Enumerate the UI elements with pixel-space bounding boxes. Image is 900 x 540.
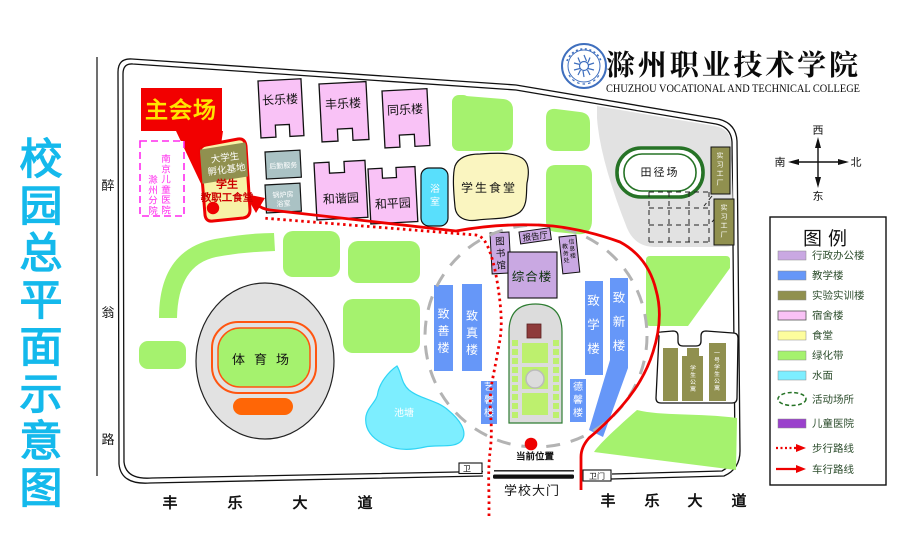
svg-text:和谐园: 和谐园 xyxy=(322,189,359,208)
svg-text:南: 南 xyxy=(775,154,786,170)
svg-text:楼: 楼 xyxy=(437,339,449,356)
svg-text:水面: 水面 xyxy=(812,368,833,383)
svg-text:同乐楼: 同乐楼 xyxy=(387,100,424,119)
svg-text:西: 西 xyxy=(813,122,824,138)
svg-text:院: 院 xyxy=(161,203,171,217)
svg-text:田径场: 田径场 xyxy=(641,164,680,180)
svg-text:当前位置: 当前位置 xyxy=(516,449,555,463)
svg-text:绿化带: 绿化带 xyxy=(812,348,844,363)
svg-text:学: 学 xyxy=(587,314,600,333)
svg-text:楼: 楼 xyxy=(466,341,478,358)
svg-text:学生食堂: 学生食堂 xyxy=(461,179,517,196)
svg-text:CHUZHOU VOCATIONAL AND TECHNIC: CHUZHOU VOCATIONAL AND TECHNICAL COLLEGE xyxy=(606,82,860,95)
svg-text:长乐楼: 长乐楼 xyxy=(262,90,299,109)
svg-text:致: 致 xyxy=(437,305,449,322)
svg-text:翁: 翁 xyxy=(101,302,114,321)
svg-text:综合楼: 综合楼 xyxy=(512,266,553,285)
svg-text:致: 致 xyxy=(613,287,626,306)
svg-text:新: 新 xyxy=(613,311,626,330)
svg-text:丰乐楼: 丰乐楼 xyxy=(325,94,362,113)
svg-text:图例: 图例 xyxy=(803,224,853,251)
svg-text:寓: 寓 xyxy=(690,384,696,393)
svg-text:致: 致 xyxy=(587,290,600,309)
svg-text:东: 东 xyxy=(813,188,824,204)
svg-text:浴室: 浴室 xyxy=(276,199,291,210)
svg-text:路: 路 xyxy=(101,429,114,448)
svg-text:乐: 乐 xyxy=(227,492,242,513)
svg-text:食堂: 食堂 xyxy=(812,328,833,343)
svg-text:丰: 丰 xyxy=(600,490,615,511)
svg-text:车行路线: 车行路线 xyxy=(812,462,854,477)
svg-text:卫门: 卫门 xyxy=(589,471,605,482)
svg-text:道: 道 xyxy=(731,490,746,511)
svg-text:后勤服务: 后勤服务 xyxy=(269,160,297,171)
svg-text:步行路线: 步行路线 xyxy=(812,441,854,456)
svg-text:学校大门: 学校大门 xyxy=(504,480,560,499)
svg-text:楼: 楼 xyxy=(613,335,626,354)
svg-text:大: 大 xyxy=(292,492,307,513)
svg-text:楼: 楼 xyxy=(573,404,583,419)
svg-text:楼: 楼 xyxy=(587,338,600,357)
svg-text:馆: 馆 xyxy=(496,257,506,271)
svg-text:致: 致 xyxy=(466,307,478,324)
svg-text:楼: 楼 xyxy=(570,250,577,260)
svg-text:寓: 寓 xyxy=(714,383,720,392)
svg-text:体育场: 体育场 xyxy=(232,349,298,368)
svg-text:真: 真 xyxy=(466,324,478,341)
svg-text:厂: 厂 xyxy=(717,178,724,188)
svg-text:厂: 厂 xyxy=(721,230,728,240)
svg-text:善: 善 xyxy=(437,322,449,339)
svg-text:主会场: 主会场 xyxy=(145,91,217,125)
svg-text:和平园: 和平园 xyxy=(374,194,411,213)
svg-text:池塘: 池塘 xyxy=(394,404,414,419)
svg-text:宿舍楼: 宿舍楼 xyxy=(812,308,844,323)
svg-text:儿童医院: 儿童医院 xyxy=(812,416,854,431)
svg-text:乐: 乐 xyxy=(644,490,659,511)
svg-text:活动场所: 活动场所 xyxy=(812,392,854,407)
svg-text:教职工食堂: 教职工食堂 xyxy=(200,190,254,205)
svg-text:大: 大 xyxy=(687,490,702,511)
svg-text:教学楼: 教学楼 xyxy=(812,268,844,283)
svg-text:图: 图 xyxy=(20,454,63,516)
svg-text:醉: 醉 xyxy=(101,175,114,194)
svg-text:院: 院 xyxy=(148,203,158,217)
svg-text:道: 道 xyxy=(357,492,372,513)
svg-text:行政办公楼: 行政办公楼 xyxy=(812,248,865,263)
svg-text:室: 室 xyxy=(430,193,440,208)
svg-text:丰: 丰 xyxy=(162,492,177,513)
svg-text:实验实训楼: 实验实训楼 xyxy=(812,288,865,303)
svg-text:处: 处 xyxy=(563,255,570,265)
svg-text:北: 北 xyxy=(851,154,862,170)
svg-text:卫: 卫 xyxy=(463,464,471,475)
